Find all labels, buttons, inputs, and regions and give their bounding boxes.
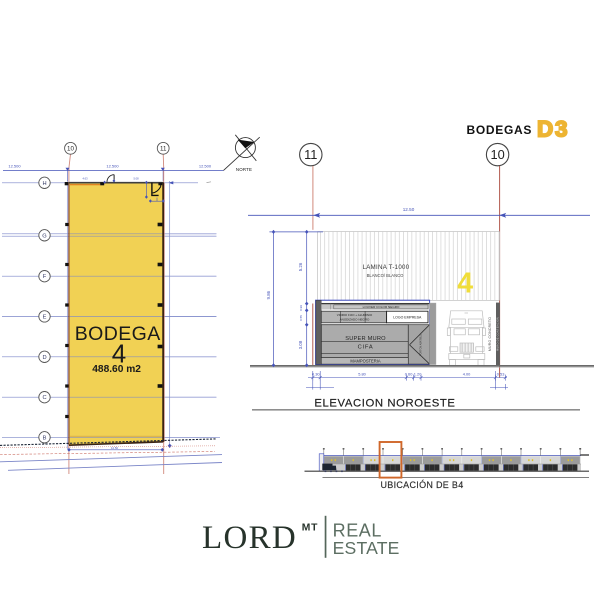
svg-text:0.30: 0.30: [312, 371, 320, 376]
svg-text:1.20: 1.20: [414, 371, 422, 376]
svg-text:0.53: 0.53: [497, 371, 505, 376]
svg-text:12.50: 12.50: [111, 446, 118, 450]
svg-text:H: H: [42, 181, 46, 187]
svg-text:4.63: 4.63: [82, 176, 88, 180]
svg-text:UBICACIÓN DE B4: UBICACIÓN DE B4: [380, 480, 463, 490]
svg-text:VIDRIO FIJO + ALUMINIO: VIDRIO FIJO + ALUMINIO: [337, 313, 373, 317]
svg-text:MURO CONCRETO: MURO CONCRETO: [488, 317, 492, 351]
svg-text:PORTON ABATIBLE: PORTON ABATIBLE: [420, 334, 423, 356]
svg-text:NORTE: NORTE: [236, 167, 252, 172]
svg-text:E: E: [43, 314, 47, 320]
svg-text:C: C: [42, 395, 46, 401]
svg-text:CIFA: CIFA: [358, 345, 374, 351]
svg-text:9.86: 9.86: [266, 290, 271, 299]
svg-text:BODEGAS: BODEGAS: [467, 123, 533, 137]
svg-text:F: F: [43, 274, 47, 280]
svg-text:D: D: [42, 355, 46, 361]
svg-text:ESTATE: ESTATE: [333, 538, 400, 558]
svg-text:D3: D3: [537, 116, 569, 141]
svg-text:4: 4: [457, 268, 473, 300]
svg-text:3.08: 3.08: [298, 340, 303, 349]
svg-text:5.08: 5.08: [133, 177, 139, 181]
svg-text:G: G: [42, 233, 46, 239]
svg-text:LORD: LORD: [202, 520, 297, 556]
svg-text:MAMPOSTERIA: MAMPOSTERIA: [350, 358, 381, 363]
svg-text:LAMINA T-1000: LAMINA T-1000: [363, 264, 410, 271]
svg-text:488.60 m2: 488.60 m2: [92, 364, 141, 375]
svg-text:5.80: 5.80: [358, 371, 366, 376]
svg-text:10: 10: [490, 147, 504, 162]
svg-text:4.00: 4.00: [463, 371, 471, 376]
svg-text:5.26: 5.26: [298, 262, 303, 271]
svg-text:0.99: 0.99: [299, 305, 303, 311]
svg-text:12.50: 12.50: [403, 207, 415, 212]
svg-text:11: 11: [160, 146, 167, 153]
svg-text:0.55: 0.55: [299, 315, 303, 321]
svg-text:MURO DE CONTENCION: MURO DE CONTENCION: [495, 317, 499, 351]
svg-text:B: B: [43, 435, 47, 441]
svg-text:ANODIZADO NEGRO: ANODIZADO NEGRO: [340, 318, 370, 322]
svg-text:SUPER MURO: SUPER MURO: [345, 336, 386, 342]
svg-text:0.60: 0.60: [405, 371, 413, 376]
svg-text:11: 11: [304, 147, 317, 162]
svg-text:12.500: 12.500: [8, 163, 21, 168]
svg-text:BLANCO/ BLANCO: BLANCO/ BLANCO: [367, 273, 405, 278]
svg-text:12.500: 12.500: [106, 163, 119, 168]
svg-text:LOUVER COLOR NEGRO: LOUVER COLOR NEGRO: [363, 305, 400, 309]
svg-text:12.500: 12.500: [199, 163, 212, 168]
svg-text:ELEVACION NOROESTE: ELEVACION NOROESTE: [314, 398, 455, 410]
svg-text:MT: MT: [302, 523, 318, 534]
svg-text:10: 10: [67, 146, 74, 153]
svg-text:LOGO EMPRESA: LOGO EMPRESA: [393, 315, 422, 319]
